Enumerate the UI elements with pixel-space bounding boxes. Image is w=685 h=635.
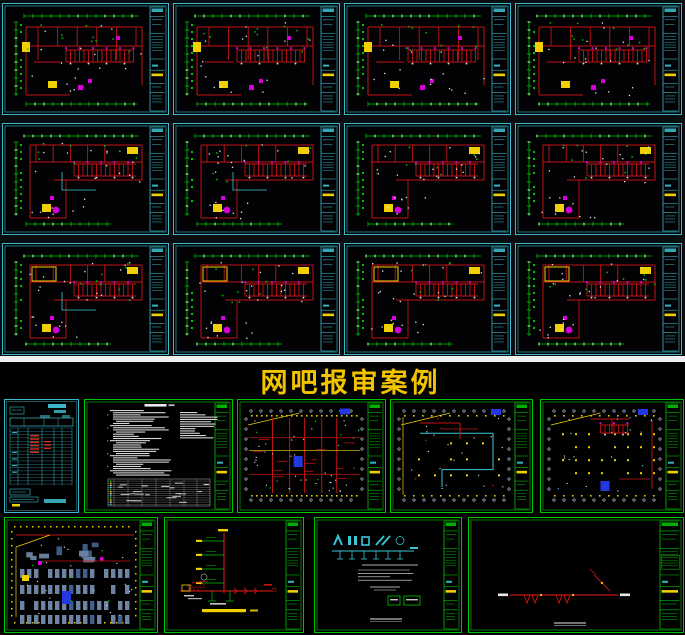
cad-sheet-line-diagram bbox=[468, 517, 684, 633]
sheet-canvas bbox=[2, 3, 169, 115]
sheet-canvas bbox=[344, 3, 511, 115]
sheet-canvas bbox=[515, 243, 682, 355]
sheet-canvas bbox=[4, 399, 79, 513]
cad-sheet-drawing-list bbox=[4, 399, 79, 513]
page-title: 网吧报审案例 bbox=[261, 361, 441, 400]
sheet-canvas bbox=[173, 243, 340, 355]
cad-sheet-plan-r3c1 bbox=[2, 243, 169, 355]
sheet-canvas bbox=[2, 123, 169, 235]
cad-sheet-plan-r1c3 bbox=[344, 3, 511, 115]
cad-collage: 网吧报审案例 bbox=[0, 0, 685, 635]
sheet-canvas bbox=[84, 399, 233, 513]
cad-sheet-plan-r3c4 bbox=[515, 243, 682, 355]
cad-sheet-plan-b bbox=[390, 399, 533, 513]
sheet-canvas bbox=[515, 3, 682, 115]
sheet-canvas bbox=[390, 399, 533, 513]
sheet-canvas bbox=[4, 517, 158, 633]
sheet-canvas bbox=[237, 399, 386, 513]
cad-sheet-plan-r2c3 bbox=[344, 123, 511, 235]
sheet-canvas bbox=[468, 517, 684, 633]
cad-sheet-plan-r1c4 bbox=[515, 3, 682, 115]
sheet-canvas bbox=[515, 123, 682, 235]
cad-sheet-furniture-plan bbox=[4, 517, 158, 633]
sheet-canvas bbox=[344, 243, 511, 355]
sheet-canvas bbox=[173, 123, 340, 235]
cad-sheet-plan-a bbox=[237, 399, 386, 513]
cad-sheet-design-notes bbox=[84, 399, 233, 513]
cad-sheet-plan-r2c2 bbox=[173, 123, 340, 235]
sheet-canvas bbox=[314, 517, 462, 633]
cad-sheet-plan-r1c2 bbox=[173, 3, 340, 115]
cad-sheet-plan-r2c4 bbox=[515, 123, 682, 235]
cad-sheet-system-schematic bbox=[314, 517, 462, 633]
cad-sheet-plan-r3c3 bbox=[344, 243, 511, 355]
sheet-canvas bbox=[173, 3, 340, 115]
sheet-canvas bbox=[2, 243, 169, 355]
sheet-canvas bbox=[344, 123, 511, 235]
cad-sheet-plan-r3c2 bbox=[173, 243, 340, 355]
cad-sheet-plan-r1c1 bbox=[2, 3, 169, 115]
cad-sheet-plan-c bbox=[540, 399, 684, 513]
bottom-sheet-grid bbox=[0, 399, 685, 635]
cad-sheet-plan-r2c1 bbox=[2, 123, 169, 235]
sheet-canvas bbox=[540, 399, 684, 513]
top-sheet-grid bbox=[0, 0, 685, 356]
title-band: 网吧报审案例 bbox=[0, 362, 685, 399]
sheet-canvas bbox=[164, 517, 304, 633]
cad-sheet-riser-diagram bbox=[164, 517, 304, 633]
